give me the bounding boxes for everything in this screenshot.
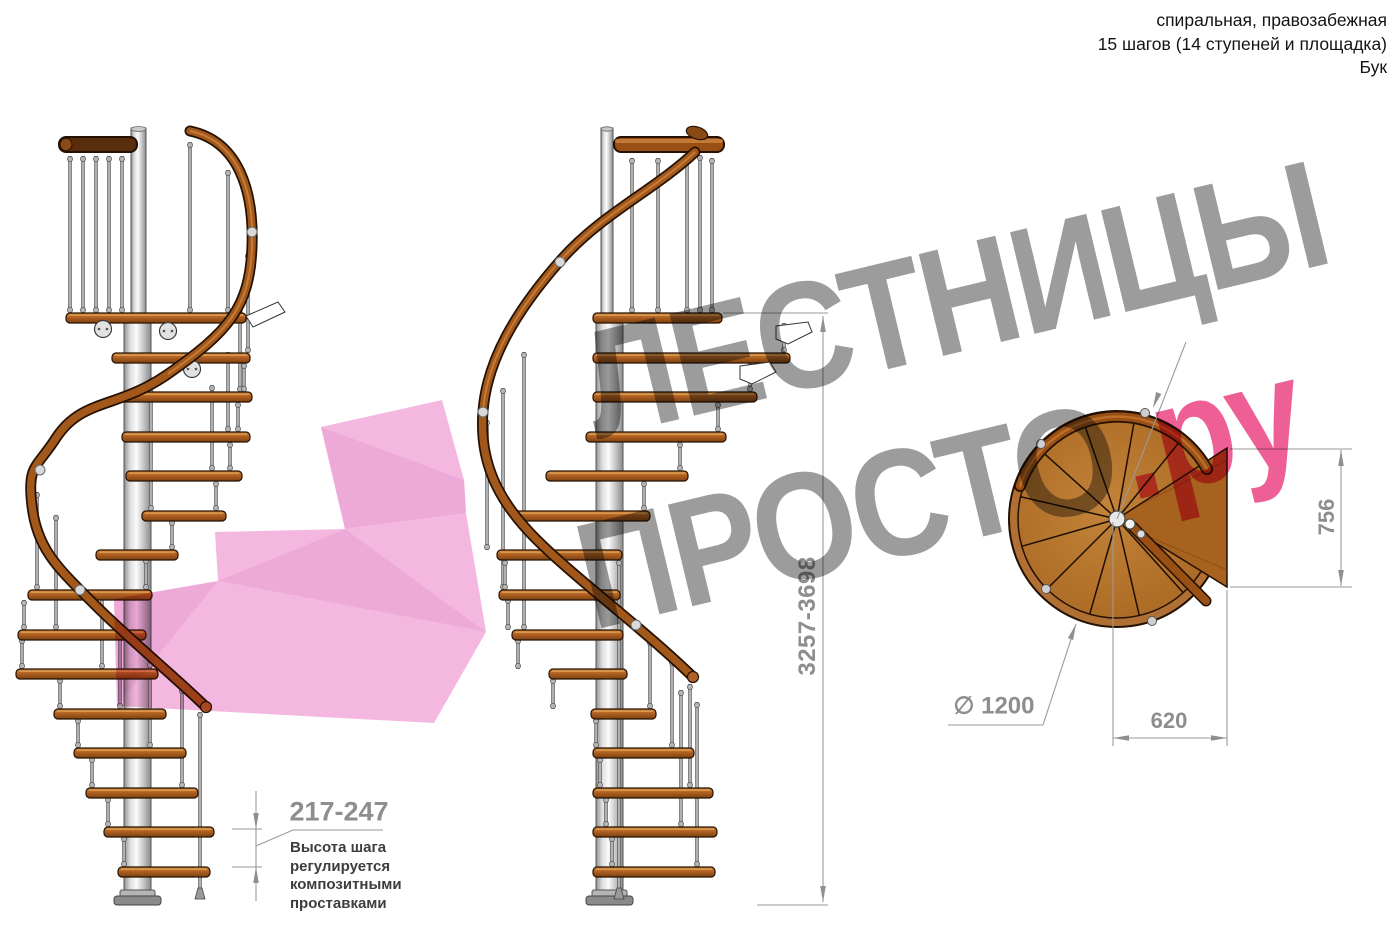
watermark-suffix: .ру	[1100, 325, 1318, 533]
drawing-canvas: ЛЕСТНИЦЫ ПРОСТО.ру спиральная, правозабе…	[0, 0, 1400, 951]
